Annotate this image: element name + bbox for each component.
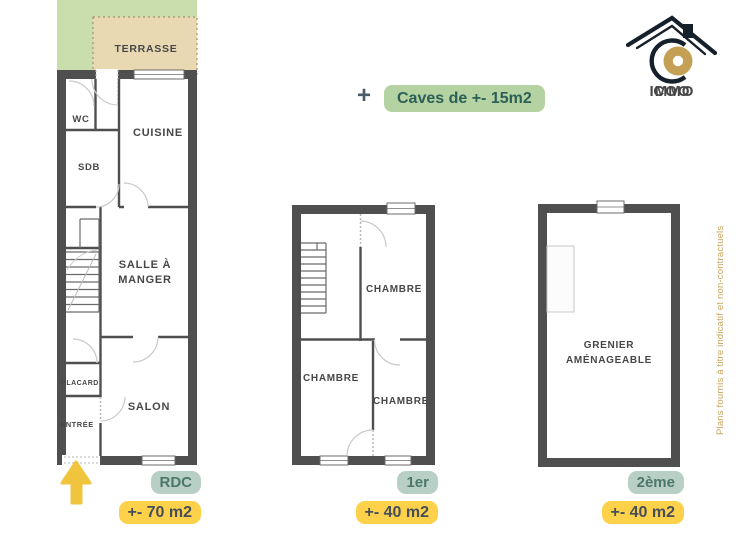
1er-outer-walls [292, 205, 435, 465]
room-label-cuisine: CUISINE [133, 127, 183, 139]
plus-icon: + [357, 84, 371, 108]
caves-badge: Caves de +- 15m2 [384, 85, 545, 112]
2eme-windows [597, 201, 624, 213]
brand-logo: COO IMMO [610, 4, 732, 104]
room-label-salle-a-manger-2: MANGER [118, 274, 172, 286]
staircase-rdc [66, 219, 99, 312]
floor-plans-page: TERRASSE [0, 0, 736, 552]
badge-floor-2eme: 2ème [628, 471, 684, 494]
badge-area-rdc: +- 70 m2 [119, 501, 201, 524]
room-label-wc: WC [72, 114, 89, 125]
staircase-1er [301, 243, 326, 313]
badge-floor-rdc: RDC [151, 471, 202, 494]
room-label-terrasse: TERRASSE [114, 43, 177, 55]
room-label-placard: PLACARD [61, 380, 99, 387]
floor-plan-rdc: TERRASSE [57, 0, 197, 503]
floor-plan-2eme: GRENIER AMÉNAGEABLE [538, 201, 680, 467]
room-label-chambre-right: CHAMBRE [373, 396, 429, 407]
1er-windows [320, 203, 415, 465]
room-label-chambre-top: CHAMBRE [366, 284, 422, 295]
room-label-salon: SALON [128, 401, 170, 413]
room-label-entree: ENTRÉE [60, 420, 94, 429]
room-label-grenier-2: AMÉNAGEABLE [566, 353, 652, 366]
floor-plan-1er: CHAMBRE CHAMBRE CHAMBRE [292, 203, 435, 465]
badge-floor-1er: 1er [397, 471, 438, 494]
room-label-grenier-1: GRENIER [584, 340, 635, 351]
room-label-chambre-left: CHAMBRE [303, 373, 359, 384]
badge-area-2eme: +- 40 m2 [602, 501, 684, 524]
stairwell-opening [547, 246, 574, 312]
badge-area-1er: +- 40 m2 [356, 501, 438, 524]
door-hinge-dots [361, 214, 374, 456]
room-label-salle-a-manger-1: SALLE À [119, 258, 171, 271]
room-label-sdb: SDB [78, 162, 100, 173]
disclaimer-note: Plans fournis à titre indicatif et non-c… [715, 235, 729, 435]
brand-name-secondary: IMMO [649, 83, 694, 100]
2eme-outer-walls [538, 204, 680, 467]
brand-monogram-icon [652, 41, 693, 82]
entrance-arrow-icon [62, 462, 90, 503]
